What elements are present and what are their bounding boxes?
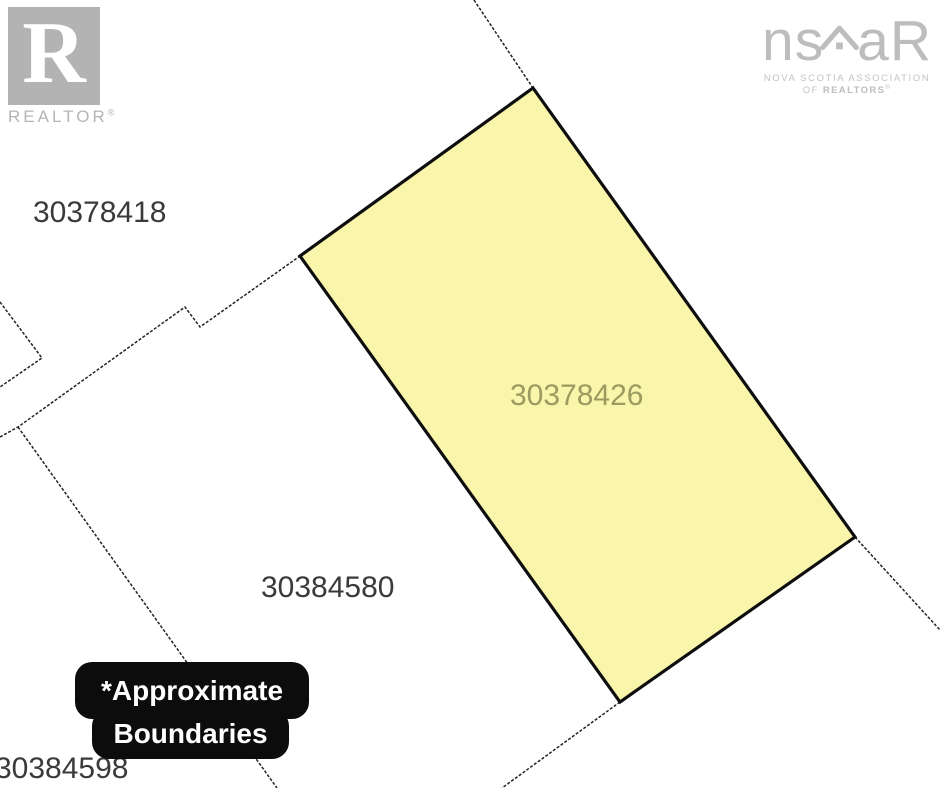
registered-mark: ® <box>108 107 115 117</box>
badge-line2: Boundaries <box>92 709 289 759</box>
nsar-logo: ns aR NOVA SCOTIA ASSOCIATION OF REALTOR… <box>762 18 932 96</box>
realtor-block-r-icon: R <box>8 7 100 105</box>
parcel-label-30378418: 30378418 <box>33 197 166 229</box>
nsar-subtitle-line1: NOVA SCOTIA ASSOCIATION <box>762 73 932 84</box>
realtor-logo: R REALTOR® <box>8 7 148 127</box>
boundary-line-top <box>474 0 533 88</box>
parcel-label-30384580: 30384580 <box>261 572 394 604</box>
realtor-wordmark: REALTOR® <box>8 107 148 127</box>
house-roof-icon <box>820 19 859 61</box>
boundary-line-right <box>855 537 940 630</box>
nsar-subtitle-line2: OF REALTORS® <box>762 85 932 96</box>
realtor-r-letter: R <box>22 10 86 98</box>
registered-mark: ® <box>885 85 891 91</box>
parcel-label-30378426: 30378426 <box>510 380 643 412</box>
boundary-line-left-wedge <box>0 302 42 387</box>
parcel-map: 30378418 30378426 30384580 30384598 R RE… <box>0 0 940 788</box>
boundary-line-bottom <box>502 702 620 788</box>
nsar-wordmark: ns aR <box>762 18 932 65</box>
boundary-line-diagonal <box>0 256 300 437</box>
